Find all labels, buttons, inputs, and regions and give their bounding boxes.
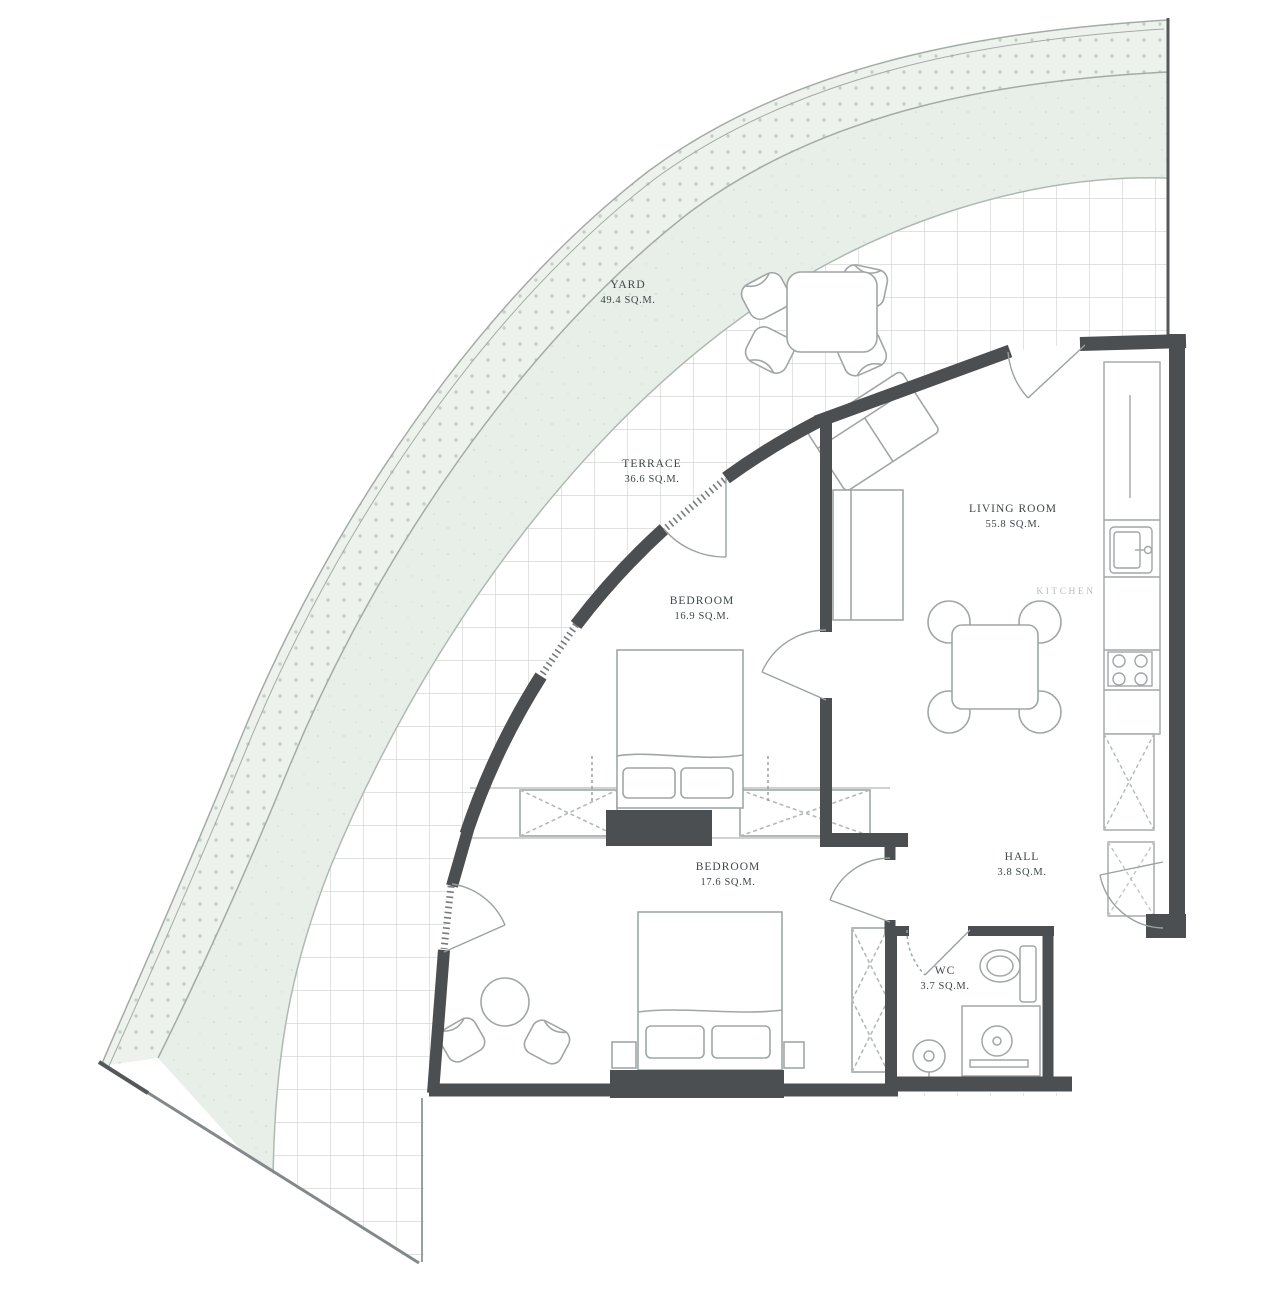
label-bedroom-upper-name: BEDROOM	[670, 595, 735, 607]
label-kitchen-name: KITCHEN	[1036, 587, 1095, 597]
label-living-room-area: 55.8 SQ.M.	[985, 519, 1040, 530]
wardrobe-bedroom-lower	[852, 928, 888, 1072]
label-wc-name: WC	[935, 965, 956, 977]
label-bedroom-lower-area: 17.6 SQ.M.	[700, 877, 755, 888]
bed-lower	[612, 912, 804, 1070]
floor-plan-svg: YARD 49.4 SQ.M. TERRACE 36.6 SQ.M. LIVIN…	[0, 0, 1285, 1300]
label-wc-area: 3.7 SQ.M.	[920, 981, 969, 992]
cut-right-top	[1169, 0, 1285, 336]
label-bedroom-lower-name: BEDROOM	[696, 861, 761, 873]
cut-right	[1187, 336, 1285, 1300]
label-terrace-area: 36.6 SQ.M.	[624, 474, 679, 485]
wardrobe-left	[520, 790, 617, 836]
kitchen-sink	[1110, 527, 1152, 573]
floor-plan-canvas: YARD 49.4 SQ.M. TERRACE 36.6 SQ.M. LIVIN…	[0, 0, 1285, 1300]
kitchen-stove	[1108, 652, 1152, 686]
bed-upper	[592, 650, 768, 808]
wardrobe-right	[740, 790, 870, 836]
wall-corner-step	[1146, 914, 1186, 938]
label-hall-area: 3.8 SQ.M.	[997, 867, 1046, 878]
label-yard-name: YARD	[610, 279, 645, 291]
label-hall-name: HALL	[1005, 851, 1040, 863]
label-terrace-name: TERRACE	[622, 458, 681, 470]
label-living-room-name: LIVING ROOM	[969, 503, 1057, 515]
kitchen-tall-cabinet	[1104, 734, 1154, 830]
wall-threshold-upper	[606, 810, 712, 846]
label-bedroom-upper-area: 16.9 SQ.M.	[674, 611, 729, 622]
label-yard-area: 49.4 SQ.M.	[600, 295, 655, 306]
wall-threshold-lower	[610, 1070, 784, 1098]
cut-below-plan	[424, 1096, 1168, 1300]
